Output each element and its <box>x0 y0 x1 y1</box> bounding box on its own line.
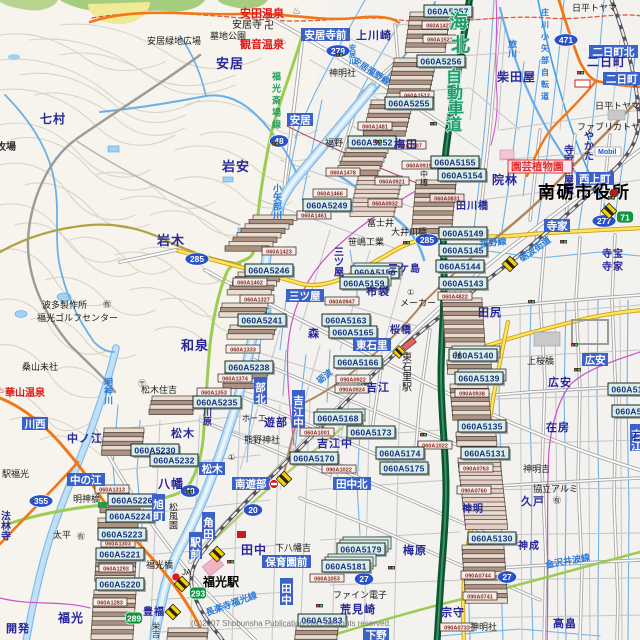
svg-text:川: 川 <box>103 396 113 406</box>
svg-text:江: 江 <box>293 405 304 418</box>
svg-text:060A0919: 060A0919 <box>406 163 432 169</box>
svg-text:060A5174: 060A5174 <box>379 449 420 459</box>
svg-text:駅: 駅 <box>190 537 201 549</box>
svg-text:060A5249: 060A5249 <box>306 201 347 211</box>
svg-text:289: 289 <box>127 613 142 623</box>
svg-text:小: 小 <box>540 31 549 41</box>
svg-text:吉江中: 吉江中 <box>317 436 353 450</box>
svg-text:海: 海 <box>449 10 468 33</box>
svg-text:060A5221: 060A5221 <box>99 550 140 560</box>
svg-text:斎: 斎 <box>272 95 281 106</box>
svg-text:安居緑地広場: 安居緑地広場 <box>147 35 201 46</box>
svg-text:060A5246: 060A5246 <box>248 266 289 276</box>
svg-text:060A5173: 060A5173 <box>350 428 391 438</box>
svg-text:前: 前 <box>190 547 201 560</box>
svg-text:南遊部: 南遊部 <box>235 478 267 491</box>
svg-text:協立アルミ: 協立アルミ <box>533 483 578 494</box>
svg-text:神明: 神明 <box>462 502 484 515</box>
svg-text:上川崎: 上川崎 <box>356 28 392 42</box>
svg-text:♨: ♨ <box>278 36 287 47</box>
svg-text:北: 北 <box>255 392 266 405</box>
svg-text:060A5165: 060A5165 <box>332 328 373 338</box>
svg-text:七村: 七村 <box>40 111 66 126</box>
svg-text:090A0733: 090A0733 <box>444 625 470 631</box>
svg-text:柴田屋: 柴田屋 <box>496 69 536 84</box>
svg-text:中ノ江: 中ノ江 <box>67 431 103 445</box>
svg-text:園芸植物園: 園芸植物園 <box>511 160 564 173</box>
svg-text:部: 部 <box>255 381 266 394</box>
svg-text:神明吉: 神明吉 <box>523 463 550 474</box>
svg-text:♨: ♨ <box>0 385 5 395</box>
svg-text:二日町: 二日町 <box>606 74 638 86</box>
svg-text:自: 自 <box>541 67 549 77</box>
svg-text:部: 部 <box>541 55 549 65</box>
svg-text:田川橋: 田川橋 <box>456 199 489 212</box>
svg-text:060A5130: 060A5130 <box>471 534 512 544</box>
svg-text:牧場: 牧場 <box>0 140 16 153</box>
svg-text:田: 田 <box>281 583 292 595</box>
svg-text:471: 471 <box>559 35 573 45</box>
svg-text:広安: 広安 <box>548 375 572 389</box>
svg-text:保育園前: 保育園前 <box>264 556 307 569</box>
svg-text:神明社: 神明社 <box>470 621 497 632</box>
svg-text:寺家: 寺家 <box>602 260 624 273</box>
svg-text:高畠: 高畠 <box>553 616 577 630</box>
svg-text:27: 27 <box>359 574 369 584</box>
svg-text:大井川橋: 大井川橋 <box>391 226 427 237</box>
svg-text:285: 285 <box>190 254 204 264</box>
svg-text:原: 原 <box>203 417 212 427</box>
svg-text:060A5155: 060A5155 <box>434 158 475 168</box>
svg-text:神明社: 神明社 <box>329 67 356 78</box>
svg-text:060A5127: 060A5127 <box>611 385 640 395</box>
svg-text:桜橋: 桜橋 <box>390 323 412 336</box>
svg-text:開発: 開発 <box>6 621 30 635</box>
svg-text:川: 川 <box>507 49 517 59</box>
svg-text:庄: 庄 <box>541 7 549 17</box>
svg-text:田中: 田中 <box>241 542 267 557</box>
svg-text:060A5255: 060A5255 <box>388 99 429 109</box>
svg-text:福光ゴルフセンター: 福光ゴルフセンター <box>37 312 118 323</box>
svg-text:二日町: 二日町 <box>587 55 626 69</box>
svg-text:中の江: 中の江 <box>70 474 102 487</box>
svg-text:園: 園 <box>169 521 178 531</box>
svg-text:060A1313: 060A1313 <box>99 487 125 493</box>
svg-text:060A1466: 060A1466 <box>317 191 343 197</box>
svg-text:060A1374: 060A1374 <box>222 376 249 382</box>
svg-text:神成: 神成 <box>518 539 540 552</box>
svg-text:060A5143: 060A5143 <box>442 279 483 289</box>
svg-text:安: 安 <box>349 43 356 52</box>
svg-text:場: 場 <box>272 107 281 118</box>
svg-text:田中北: 田中北 <box>336 478 368 491</box>
svg-text:060A1001: 060A1001 <box>304 430 330 436</box>
svg-text:笹嶋工業: 笹嶋工業 <box>348 236 384 247</box>
svg-text:屋: 屋 <box>334 267 344 279</box>
svg-text:久戸: 久戸 <box>521 494 545 508</box>
svg-text:ホー工: ホー工 <box>242 414 266 423</box>
svg-text:寺: 寺 <box>1 530 11 543</box>
svg-text:060A5131: 060A5131 <box>464 449 505 459</box>
svg-text:060A0947: 060A0947 <box>329 299 355 305</box>
svg-text:090A0763: 090A0763 <box>463 466 489 472</box>
svg-text:060A1333: 060A1333 <box>230 347 256 353</box>
svg-text:27: 27 <box>502 572 512 582</box>
svg-text:060A5139: 060A5139 <box>458 374 499 384</box>
svg-text:090A1022: 090A1022 <box>326 467 352 473</box>
svg-text:〶: 〶 <box>138 379 146 388</box>
svg-text:川: 川 <box>272 211 282 221</box>
svg-text:田: 田 <box>203 528 214 540</box>
svg-text:松木: 松木 <box>171 426 195 440</box>
svg-text:060A5168: 060A5168 <box>317 414 358 424</box>
svg-text:060A5166: 060A5166 <box>337 358 378 368</box>
svg-text:熊野神社: 熊野神社 <box>244 434 280 445</box>
svg-text:060A1478: 060A1478 <box>330 170 356 176</box>
svg-text:060A5149: 060A5149 <box>442 229 483 239</box>
svg-text:060A1283: 060A1283 <box>97 600 123 606</box>
svg-text:060A1022: 060A1022 <box>422 443 448 449</box>
svg-text:富士井: 富士井 <box>367 217 394 228</box>
svg-text:荒見崎: 荒見崎 <box>339 602 376 616</box>
svg-text:中: 中 <box>293 417 304 430</box>
svg-text:福野: 福野 <box>325 137 343 148</box>
svg-text:松木: 松木 <box>202 463 223 476</box>
svg-text:060A1293: 060A1293 <box>103 566 129 572</box>
svg-text:明神橋: 明神橋 <box>73 493 100 504</box>
svg-text:060A5135: 060A5135 <box>461 422 502 432</box>
svg-text:060A1461: 060A1461 <box>301 213 327 219</box>
svg-text:川西: 川西 <box>24 419 46 431</box>
svg-text:♨: ♨ <box>292 6 301 17</box>
svg-text:㊒: ㊒ <box>103 300 111 309</box>
svg-text:060A1481: 060A1481 <box>362 124 388 130</box>
svg-text:矢: 矢 <box>541 43 550 53</box>
svg-text:安居寺前: 安居寺前 <box>304 29 346 42</box>
svg-text:060A5175: 060A5175 <box>383 464 424 474</box>
svg-text:福光: 福光 <box>57 610 84 625</box>
svg-text:町: 町 <box>153 510 164 522</box>
svg-text:060A1353: 060A1353 <box>201 390 227 396</box>
svg-text:(C)2007 Shobunsha Publications: (C)2007 Shobunsha Publications,Inc. All … <box>191 619 391 628</box>
svg-text:060A1053: 060A1053 <box>314 576 340 582</box>
svg-text:駅福光: 駅福光 <box>2 468 29 479</box>
svg-text:下八幡吉: 下八幡吉 <box>275 542 311 553</box>
svg-text:和泉: 和泉 <box>181 338 209 353</box>
svg-text:福光駅: 福光駅 <box>202 574 240 589</box>
svg-text:060A1423: 060A1423 <box>266 249 292 255</box>
svg-text:060A1327: 060A1327 <box>244 297 270 303</box>
svg-text:た: た <box>584 151 594 163</box>
svg-text:吉江: 吉江 <box>366 380 390 394</box>
svg-text:090A0922: 090A0922 <box>340 377 366 383</box>
svg-text:ファブリカトヤマ: ファブリカトヤマ <box>577 121 640 132</box>
svg-text:060A5256: 060A5256 <box>420 57 461 67</box>
svg-text:日平トヤマ: 日平トヤマ <box>595 101 640 111</box>
svg-text:八幡: 八幡 <box>157 476 184 491</box>
svg-text:川: 川 <box>348 58 356 66</box>
svg-text:福光橋: 福光橋 <box>146 559 173 570</box>
svg-text:090A0938: 090A0938 <box>459 391 485 397</box>
svg-text:293: 293 <box>191 588 206 598</box>
svg-text:060A5144: 060A5144 <box>439 262 480 272</box>
svg-text:JA: JA <box>182 568 192 577</box>
svg-text:石: 石 <box>631 431 640 443</box>
svg-text:華山温泉: 華山温泉 <box>5 386 46 399</box>
svg-text:060A5232: 060A5232 <box>153 456 194 466</box>
svg-text:駅: 駅 <box>402 382 412 394</box>
svg-text:下野: 下野 <box>366 630 387 640</box>
svg-text:060A5223: 060A5223 <box>101 530 142 540</box>
svg-text:梅田: 梅田 <box>394 137 418 151</box>
svg-text:090A0741: 090A0741 <box>467 594 493 600</box>
svg-text:梅原: 梅原 <box>403 543 427 557</box>
svg-text:①: ① <box>228 453 235 462</box>
svg-text:在房: 在房 <box>546 420 570 434</box>
svg-text:71: 71 <box>620 212 630 222</box>
svg-text:居: 居 <box>349 51 356 59</box>
svg-text:岩木: 岩木 <box>156 233 185 248</box>
svg-text:060A5154: 060A5154 <box>441 171 482 181</box>
svg-text:宗守: 宗守 <box>441 605 465 619</box>
svg-text:卍: 卍 <box>264 20 274 32</box>
svg-text:060A5145: 060A5145 <box>442 246 483 256</box>
svg-text:寺家: 寺家 <box>547 220 568 233</box>
svg-text:060A5241: 060A5241 <box>241 316 282 326</box>
svg-text:安居: 安居 <box>290 114 311 127</box>
svg-text:椿: 椿 <box>420 177 428 187</box>
svg-text:060A5220: 060A5220 <box>99 580 140 590</box>
svg-text:旭: 旭 <box>152 498 164 511</box>
svg-text:ファイン電子: ファイン電子 <box>333 590 387 600</box>
svg-text:中: 中 <box>281 593 292 606</box>
svg-text:060A5123: 060A5123 <box>615 407 640 417</box>
svg-text:福: 福 <box>271 71 281 82</box>
svg-text:遊部: 遊部 <box>264 415 288 429</box>
svg-text:355: 355 <box>34 496 48 506</box>
svg-text:三ケ島: 三ケ島 <box>388 262 421 275</box>
svg-text:三ツ屋: 三ツ屋 <box>289 291 321 303</box>
svg-text:松木住吉: 松木住吉 <box>141 384 177 395</box>
svg-text:060A0921: 060A0921 <box>379 179 405 185</box>
svg-text:北: 北 <box>451 34 470 56</box>
svg-text:060A5170: 060A5170 <box>293 454 334 464</box>
svg-text:川: 川 <box>540 20 549 29</box>
svg-text:060A5179: 060A5179 <box>340 545 381 555</box>
svg-text:日平トヤマ: 日平トヤマ <box>572 3 617 13</box>
svg-text:社: 社 <box>454 350 462 360</box>
svg-text:吉: 吉 <box>293 394 304 407</box>
svg-text:岩安: 岩安 <box>221 159 250 174</box>
svg-text:布袋: 布袋 <box>366 284 390 298</box>
svg-text:広安: 広安 <box>585 354 606 367</box>
svg-text:院林: 院林 <box>492 172 518 187</box>
svg-text:㊒: ㊒ <box>553 496 561 505</box>
svg-text:060A5181: 060A5181 <box>325 562 366 572</box>
svg-text:桑山未社: 桑山未社 <box>22 361 58 372</box>
svg-text:豊福: 豊福 <box>143 605 165 618</box>
svg-text:060A1521: 060A1521 <box>427 37 453 43</box>
svg-text:田尻: 田尻 <box>478 306 502 319</box>
svg-text:090A0744: 090A0744 <box>465 573 492 579</box>
svg-text:安田温泉: 安田温泉 <box>240 6 285 20</box>
svg-text:太平: 太平 <box>53 529 71 540</box>
svg-text:060A5235: 060A5235 <box>196 398 237 408</box>
svg-text:自: 自 <box>446 67 462 86</box>
svg-text:安居: 安居 <box>216 56 244 71</box>
svg-text:060A5238: 060A5238 <box>228 363 269 373</box>
svg-text:060A1402: 060A1402 <box>237 280 263 286</box>
svg-text:寺宝: 寺宝 <box>602 247 624 260</box>
svg-text:Mobil: Mobil <box>598 149 616 156</box>
svg-text:060A0932: 060A0932 <box>372 201 398 207</box>
svg-text:060A1303: 060A1303 <box>105 541 131 547</box>
svg-text:森: 森 <box>308 326 320 340</box>
svg-text:動: 動 <box>447 83 463 102</box>
svg-text:060A5163: 060A5163 <box>325 316 366 326</box>
svg-text:①: ① <box>407 288 414 297</box>
svg-text:車: 車 <box>448 99 464 118</box>
svg-text:090A0924: 090A0924 <box>339 387 366 393</box>
svg-text:道: 道 <box>541 91 549 101</box>
svg-text:線: 線 <box>272 119 281 130</box>
svg-text:060A4822: 060A4822 <box>442 294 468 300</box>
svg-text:光: 光 <box>271 83 281 94</box>
svg-text:道: 道 <box>446 115 462 134</box>
svg-text:㊒: ㊒ <box>77 532 85 541</box>
svg-text:メーカー: メーカー <box>400 298 436 308</box>
svg-text:吉: 吉 <box>152 630 160 639</box>
svg-text:060A5226: 060A5226 <box>111 496 152 506</box>
svg-text:20: 20 <box>248 505 258 515</box>
svg-text:060A5224: 060A5224 <box>109 512 150 522</box>
svg-text:転: 転 <box>541 79 549 89</box>
svg-text:波多製作所: 波多製作所 <box>42 299 87 310</box>
svg-text:東石里: 東石里 <box>356 339 388 352</box>
svg-text:上桜橋: 上桜橋 <box>527 355 554 366</box>
svg-text:090A0760: 090A0760 <box>461 488 487 494</box>
svg-text:060A5252: 060A5252 <box>351 138 392 148</box>
svg-text:角: 角 <box>203 516 214 529</box>
